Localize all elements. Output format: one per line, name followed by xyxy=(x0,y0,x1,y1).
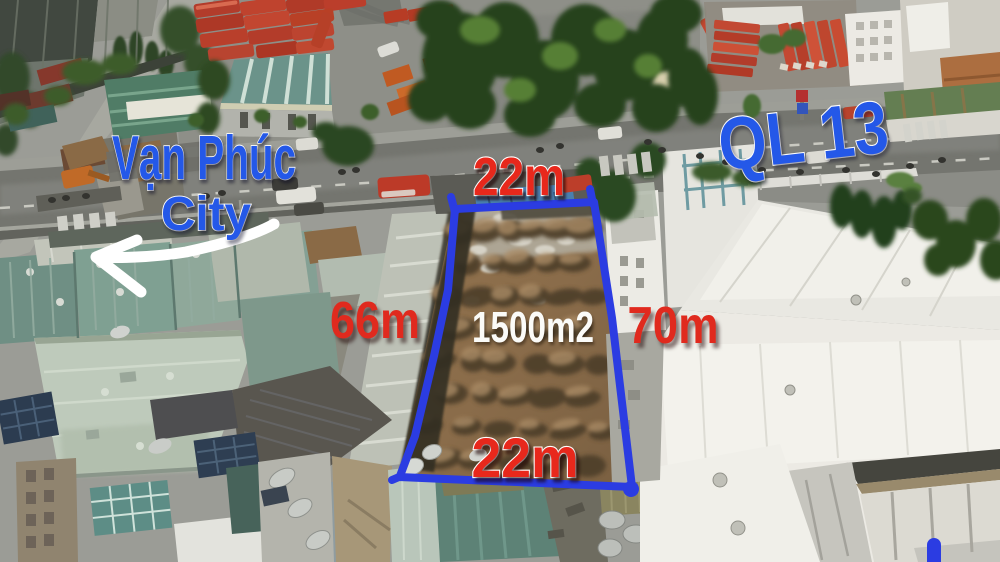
svg-text:66m: 66m xyxy=(330,292,420,350)
svg-text:70m: 70m xyxy=(628,297,719,355)
svg-text:22m: 22m xyxy=(473,147,565,207)
svg-text:1500m2: 1500m2 xyxy=(472,303,594,352)
svg-text:Vạn Phúc: Vạn Phúc xyxy=(112,124,296,193)
svg-text:City: City xyxy=(161,188,251,241)
svg-text:22m: 22m xyxy=(472,426,579,489)
